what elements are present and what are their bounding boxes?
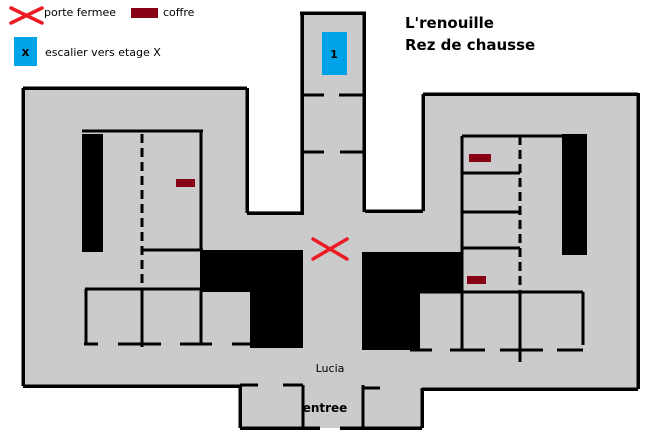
stairs-marker-label: 1 (330, 48, 338, 61)
floorplan-canvas: 1 Lucia entree porte fermee coffre x esc… (0, 0, 661, 439)
floorplan-map: 1 Lucia entree (0, 0, 661, 439)
closed-door-icon (8, 3, 46, 27)
entrance-label: entree (303, 401, 348, 415)
map-title-line2: Rez de chausse (405, 34, 535, 56)
map-title-line1: L'renouille (405, 12, 535, 34)
stairs-icon-symbol: x (22, 45, 30, 59)
chest-icon (131, 8, 158, 18)
hall-label: Lucia (316, 362, 345, 375)
legend-closed-door-label: porte fermee (44, 6, 116, 19)
wall-block-center-left-col (250, 292, 303, 348)
wall-block-center-right-col (362, 292, 420, 350)
wall-block-left-tall (82, 134, 103, 252)
wall-block-right-tall (562, 134, 587, 255)
stairs-marker: 1 (322, 32, 347, 75)
map-title: L'renouille Rez de chausse (405, 12, 535, 56)
stairs-icon: x (14, 37, 37, 66)
chest-marker-right-mid (467, 276, 486, 284)
legend-stairs-label: escalier vers etage X (45, 46, 161, 59)
wall-block-center-left-bar (200, 250, 303, 292)
chest-marker-right-top (469, 154, 491, 162)
chest-marker-left-wing (176, 179, 195, 187)
wall-block-center-right-bar (362, 252, 462, 292)
legend-chest-label: coffre (163, 6, 194, 19)
